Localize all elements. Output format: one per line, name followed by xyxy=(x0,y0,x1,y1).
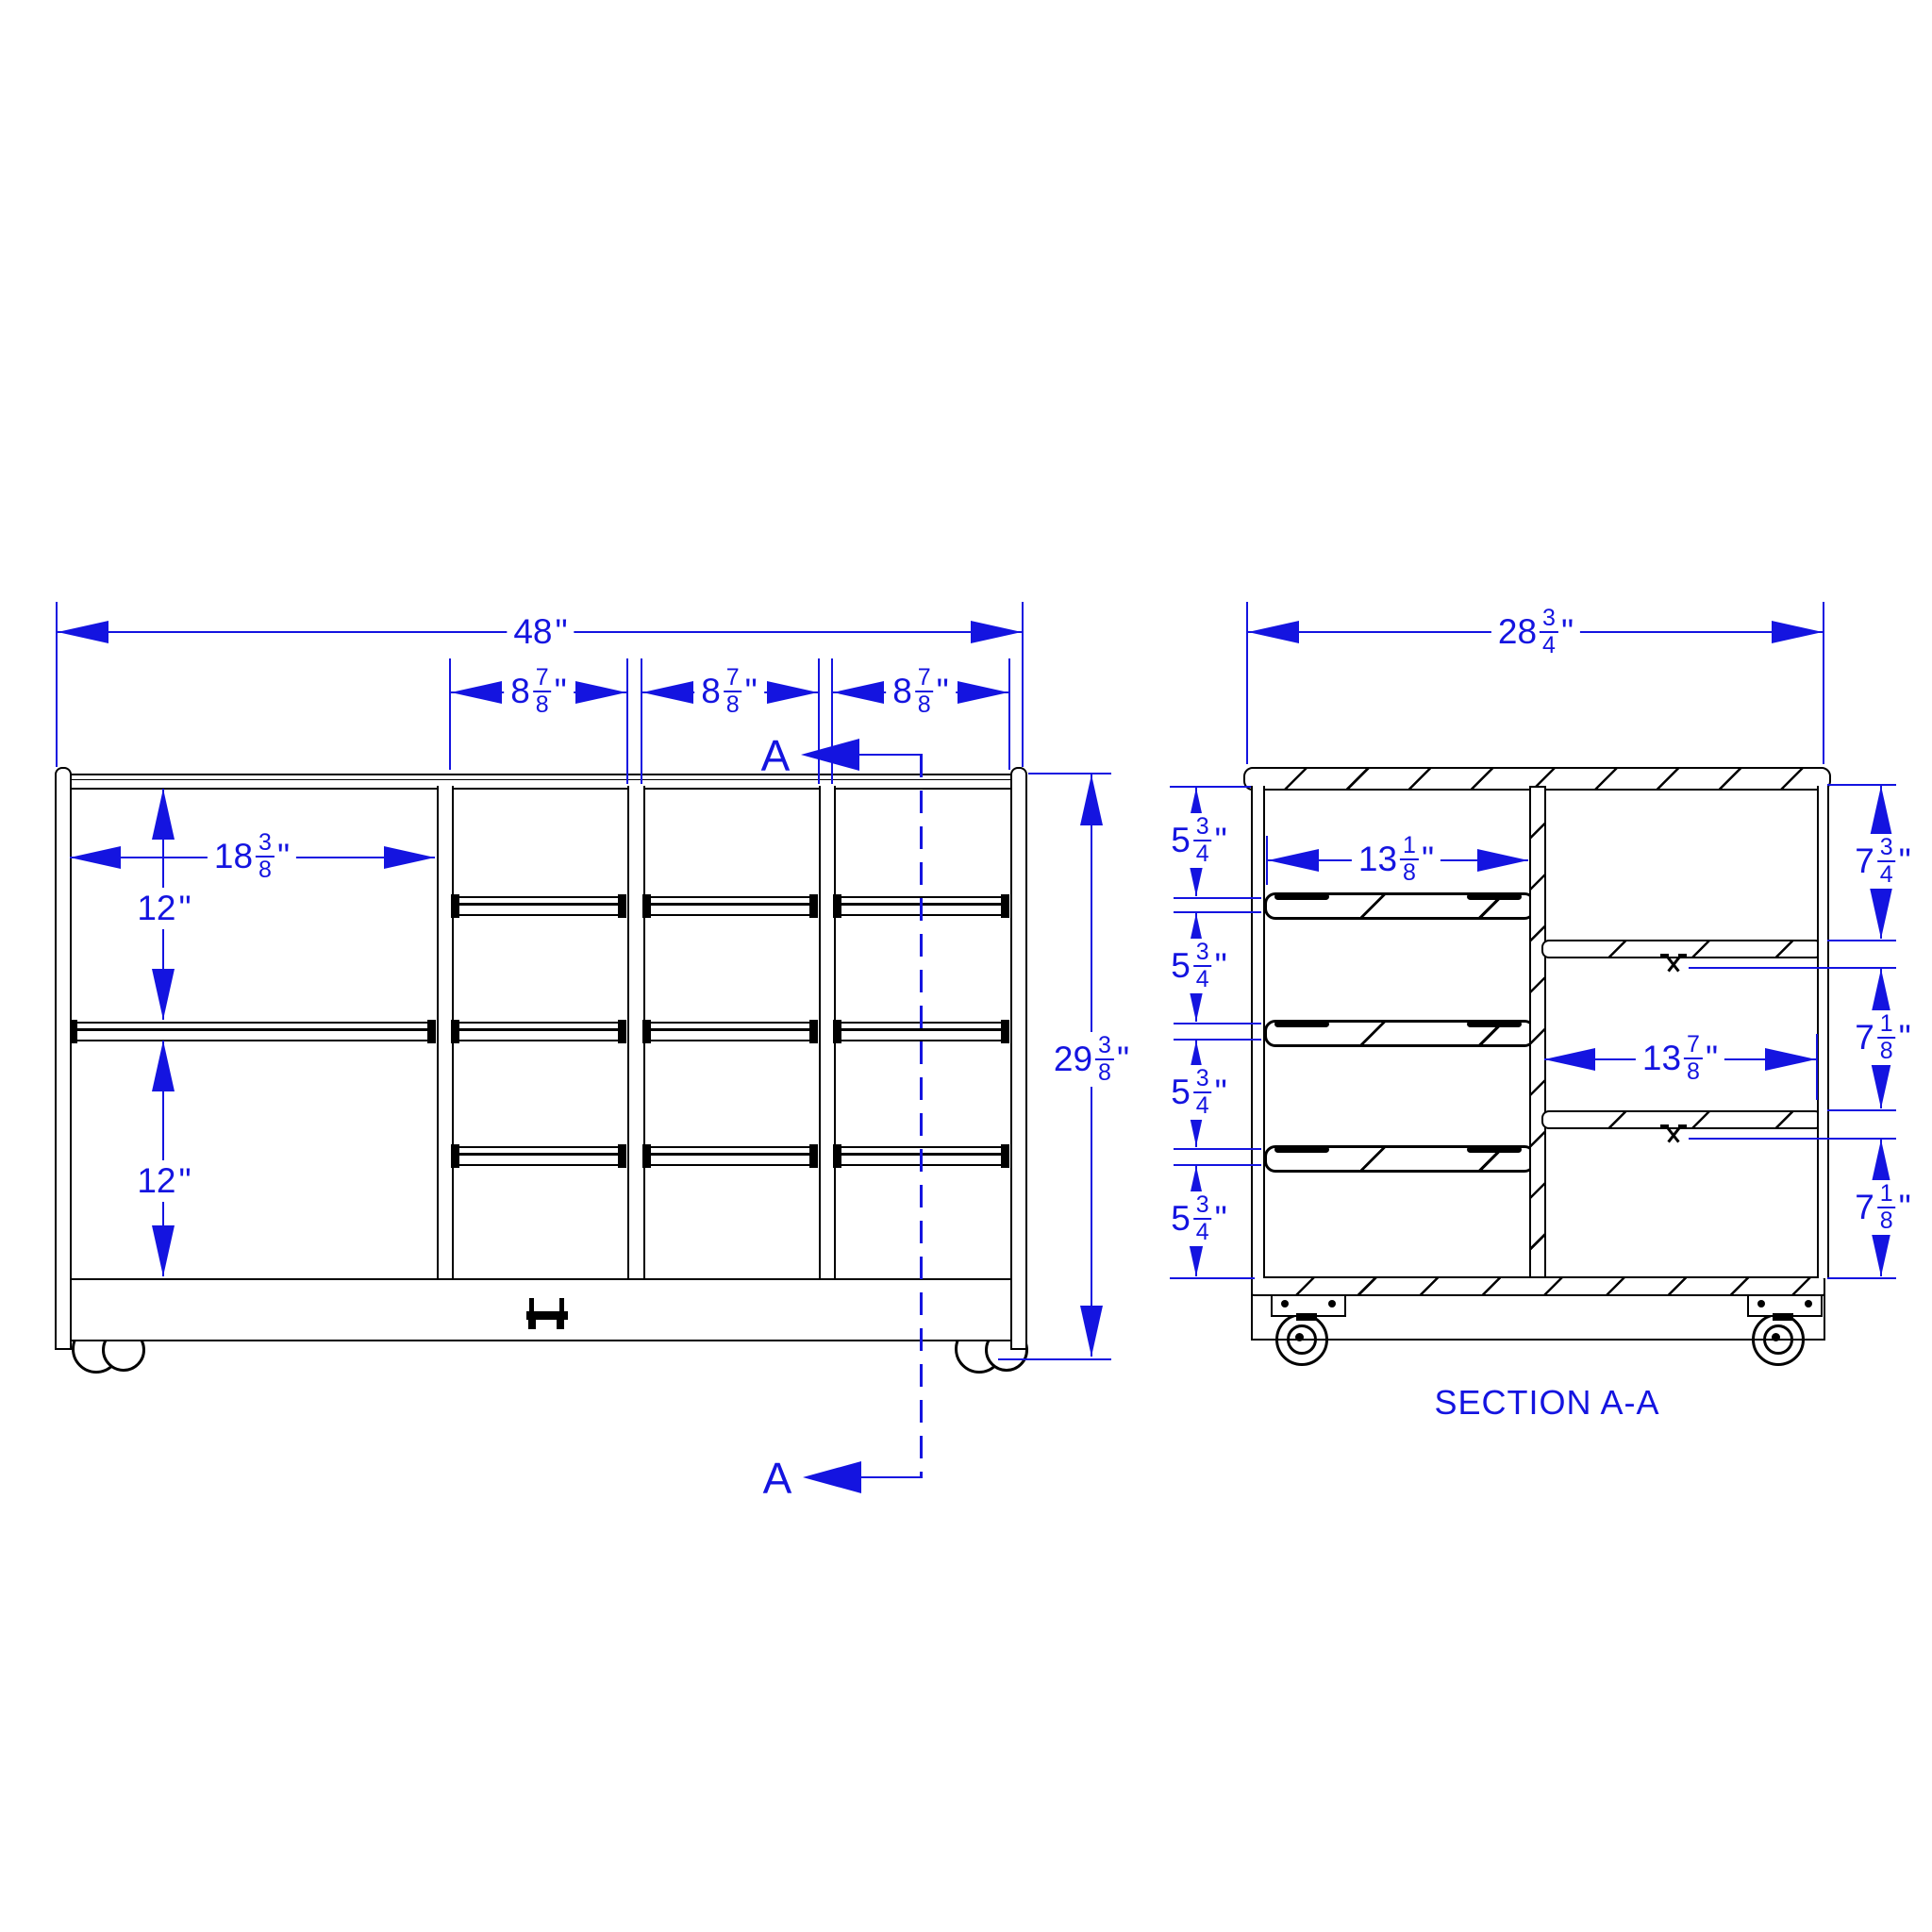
front-tote-rail xyxy=(643,1146,817,1166)
dim-shelf-spacing-label: 12" xyxy=(130,888,197,929)
dim-column-width-label: 8 78 " xyxy=(886,664,956,719)
dim-left-opening-label: 18 38 " xyxy=(208,829,296,884)
dim-tote-depth-label: 13 18 " xyxy=(1352,832,1441,887)
section-arrow-icon xyxy=(803,1461,861,1493)
section-tote-shelf xyxy=(1264,892,1536,920)
dim-tote-spacing-label: 5 34 " xyxy=(1164,939,1234,993)
dim-top-shelf-clearance-label: 7 34 " xyxy=(1848,834,1918,889)
dim-right-shelf-depth-label: 13 78 " xyxy=(1636,1031,1724,1086)
section-base-panel xyxy=(1251,1276,1825,1296)
front-tote-rail xyxy=(452,1146,625,1166)
front-left-shelf xyxy=(70,1022,435,1041)
dim-column-width-label: 8 78 " xyxy=(504,664,574,719)
dim-shelf-clearance-label: 7 18 " xyxy=(1848,1010,1918,1065)
dim-overall-depth-label: 28 34 " xyxy=(1491,605,1580,659)
section-right-wall xyxy=(1817,786,1829,1278)
shelf-clip-icon xyxy=(1657,1126,1690,1145)
front-tote-rail xyxy=(643,1022,817,1041)
front-top-rail-inner-line xyxy=(68,779,1010,780)
section-marker-bottom: A xyxy=(763,1453,792,1504)
section-center-divider xyxy=(1529,786,1546,1284)
front-right-post xyxy=(1010,767,1027,1350)
section-arrow-icon xyxy=(801,739,859,771)
dim-tote-spacing-label: 5 34 " xyxy=(1164,813,1234,868)
section-tote-shelf xyxy=(1264,1145,1536,1173)
front-tote-rail xyxy=(452,896,625,916)
section-title: SECTION A-A xyxy=(1434,1383,1659,1423)
section-left-wall xyxy=(1251,786,1265,1278)
front-top-rail xyxy=(68,774,1010,790)
front-tote-rail xyxy=(452,1022,625,1041)
dim-column-width-label: 8 78 " xyxy=(694,664,764,719)
section-tote-shelf xyxy=(1264,1020,1536,1047)
section-bottom-edge xyxy=(1251,1339,1825,1341)
dim-overall-height-label: 29 38 " xyxy=(1047,1032,1136,1087)
cad-drawing-canvas: 48" 8 78 " 8 78 " 8 78 " xyxy=(0,0,1932,1932)
dim-shelf-clearance-label: 7 18 " xyxy=(1848,1180,1918,1235)
shelf-clip-icon xyxy=(1657,956,1690,974)
dim-tote-spacing-label: 5 34 " xyxy=(1164,1065,1234,1120)
dim-shelf-spacing-label: 12" xyxy=(130,1160,197,1202)
dim-tote-spacing-label: 5 34 " xyxy=(1164,1191,1234,1246)
section-marker-top: A xyxy=(761,730,791,781)
dim-overall-width-label: 48" xyxy=(507,611,574,653)
front-tote-rail xyxy=(643,896,817,916)
